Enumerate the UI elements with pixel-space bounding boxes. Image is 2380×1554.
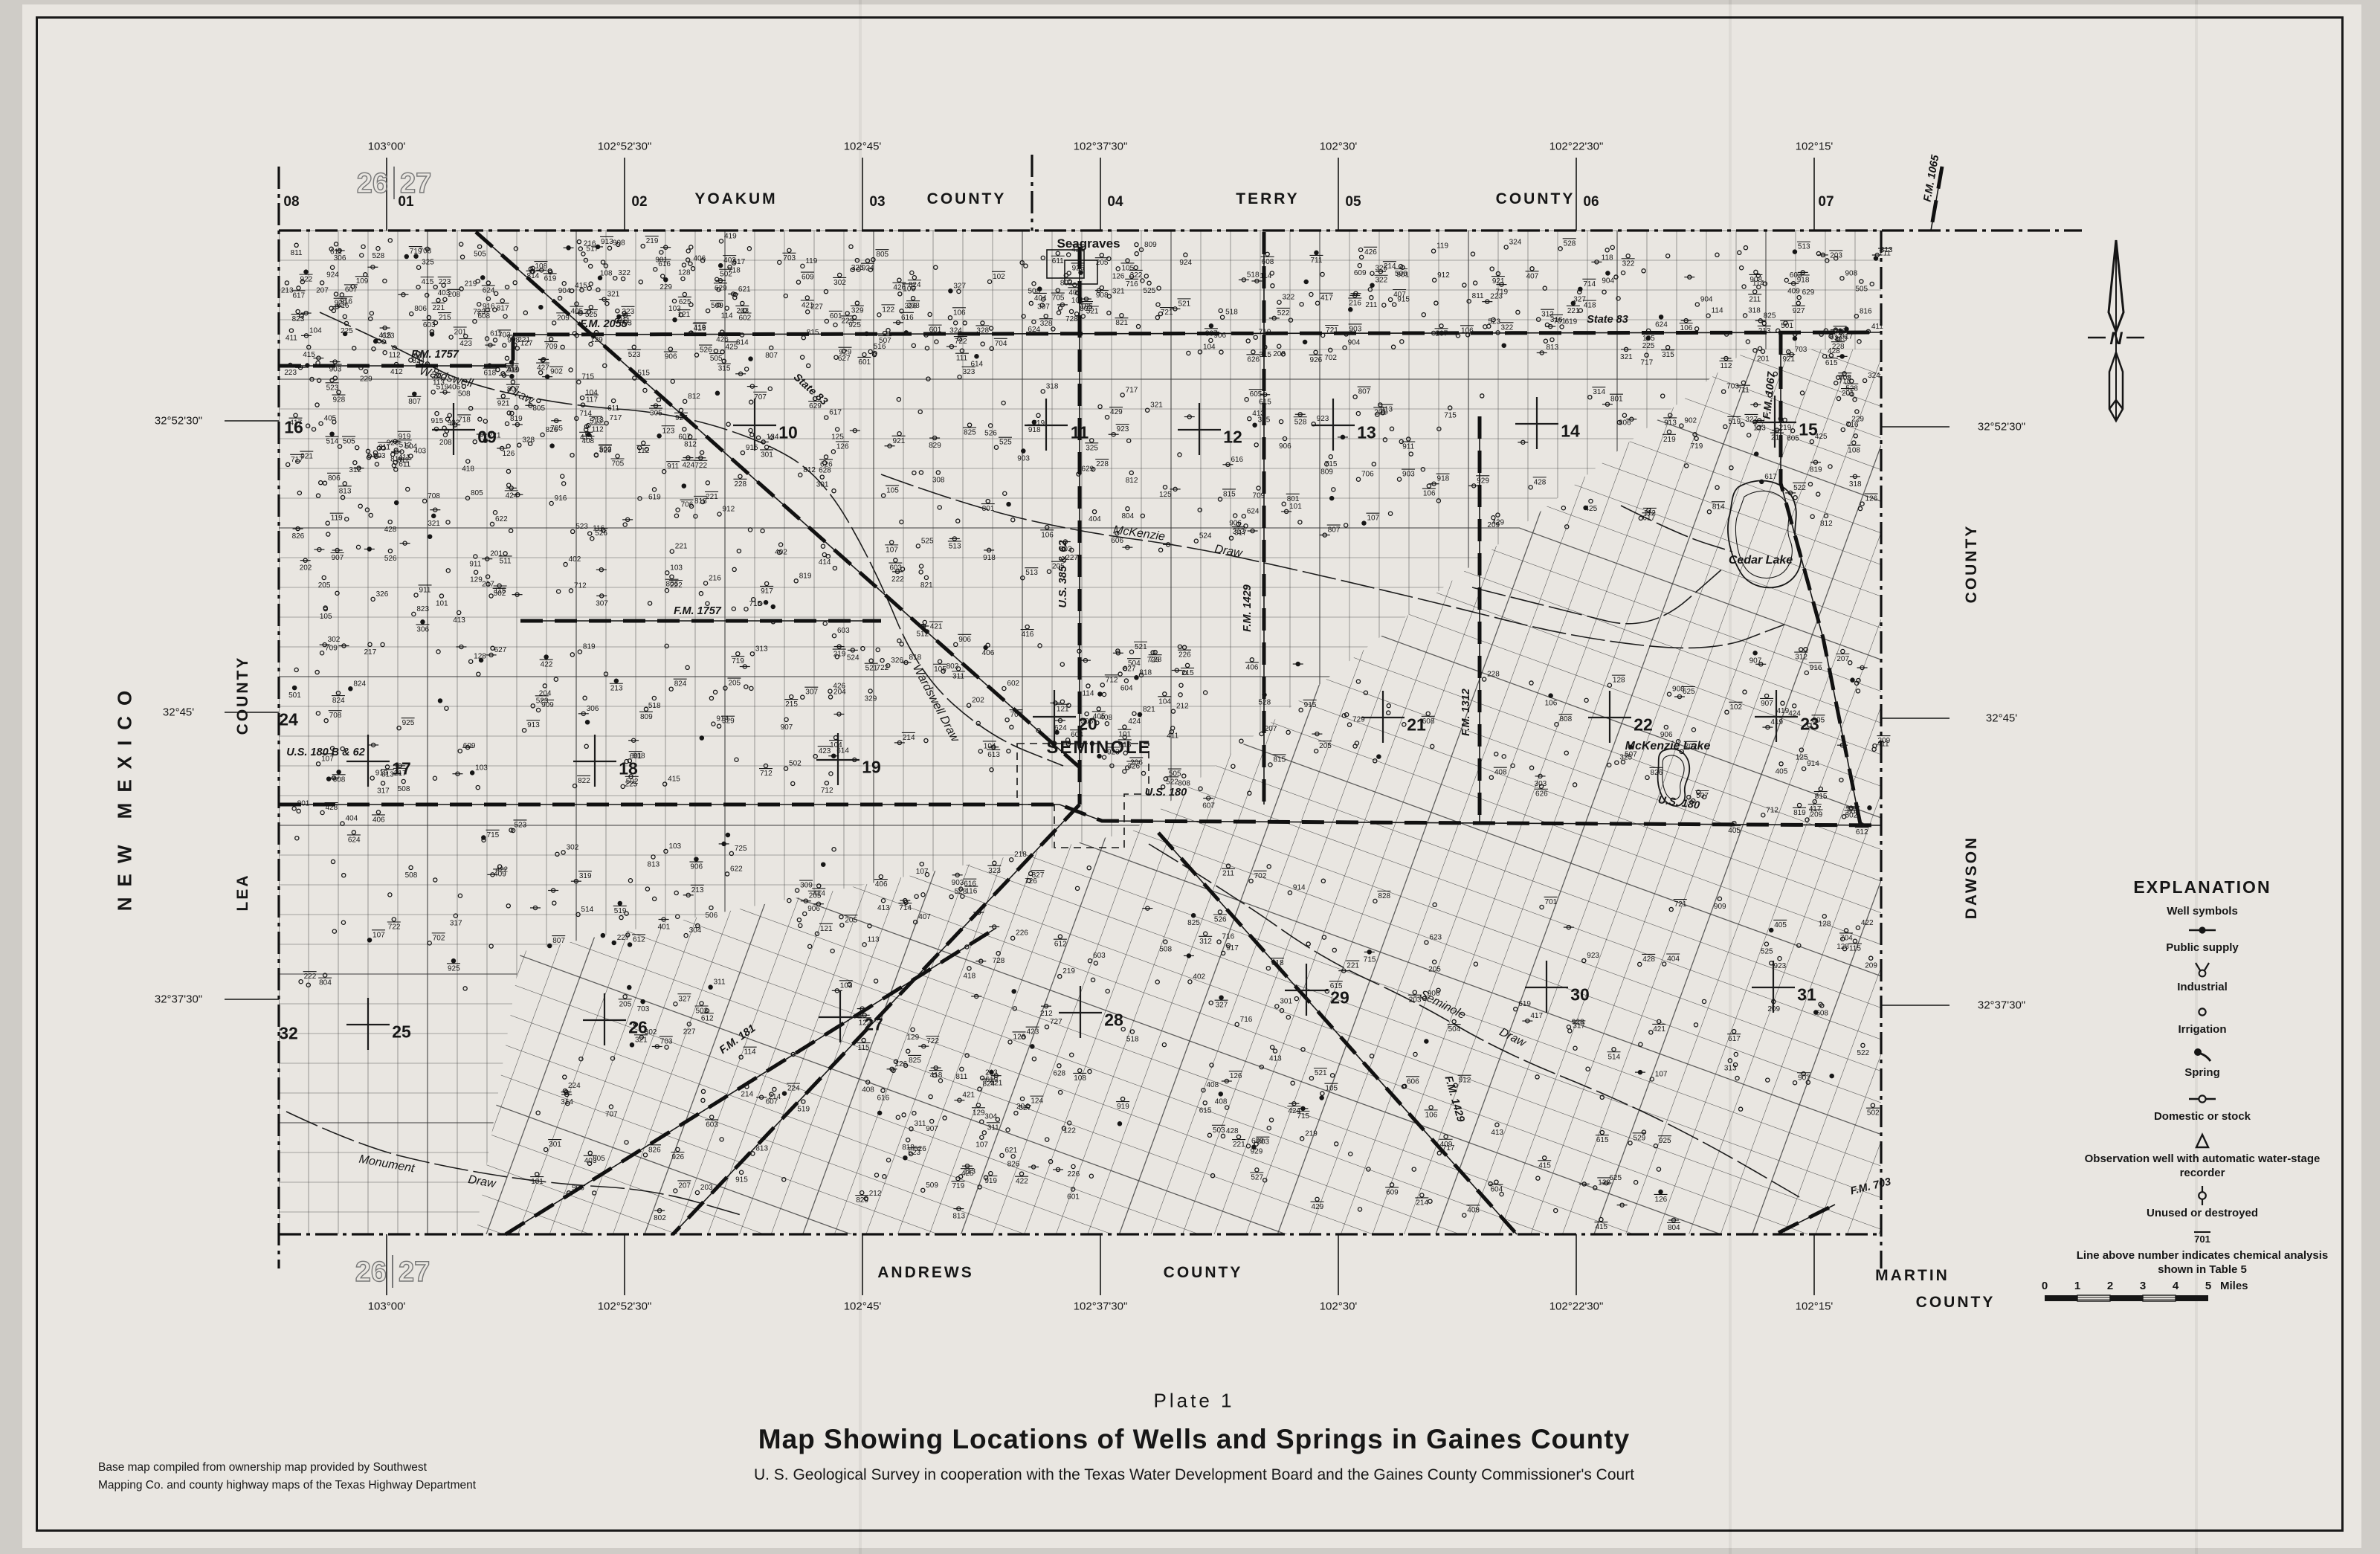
well-number: 106: [903, 285, 915, 293]
well-marker: [536, 708, 540, 712]
well-marker: [701, 1089, 705, 1093]
well-marker: [1315, 301, 1319, 305]
well-number: 314: [1593, 388, 1605, 396]
well-marker: [906, 1138, 910, 1142]
well-marker: [874, 1173, 878, 1177]
well-marker: [1094, 961, 1097, 965]
well-marker: [1130, 1030, 1134, 1034]
well-marker: [771, 604, 775, 608]
well-number: 301: [1280, 998, 1292, 1006]
well-marker: [1057, 1064, 1061, 1068]
well-number: 304: [689, 926, 702, 935]
well-number: 815: [807, 329, 819, 337]
well-marker: [652, 488, 656, 491]
well-marker: [1412, 1167, 1416, 1171]
well-number: 225: [625, 780, 638, 788]
well-marker: [458, 894, 462, 897]
scale-tick: 3: [2140, 1280, 2146, 1292]
well-number: 104: [585, 389, 598, 397]
well-number: 408: [1100, 714, 1112, 722]
well-number: 223: [439, 278, 451, 286]
well-marker: [1429, 1106, 1433, 1109]
well-marker: [1253, 423, 1257, 427]
well-marker: [510, 375, 514, 378]
legend-item-industrial: Industrial: [2076, 958, 2329, 995]
well-marker: [1242, 515, 1245, 518]
well-number: 408: [1494, 769, 1507, 777]
well-marker: [320, 810, 324, 814]
well-marker: [501, 394, 505, 398]
well-marker: [890, 541, 894, 544]
well-marker: [1178, 693, 1182, 697]
well-marker: [1856, 926, 1860, 929]
well-marker: [897, 432, 901, 436]
well-marker: [625, 1141, 628, 1144]
well-marker: [1480, 394, 1484, 398]
well-marker: [1368, 288, 1372, 291]
well-marker: [1824, 514, 1828, 518]
well-marker: [1863, 378, 1867, 382]
well-marker: [457, 610, 461, 614]
well-number: 715: [487, 831, 500, 839]
well-number: 927: [1793, 307, 1805, 315]
well-marker: [717, 724, 720, 728]
well-marker: [1020, 1097, 1024, 1100]
well-marker: [1694, 436, 1698, 440]
well-marker: [1007, 749, 1010, 753]
well-marker: [1692, 799, 1695, 802]
well-marker: [923, 620, 926, 624]
well-marker: [956, 519, 960, 523]
well-marker: [978, 749, 982, 753]
legend-item-label: Domestic or stock: [2076, 1110, 2329, 1124]
well-number: 722: [877, 664, 889, 672]
well-marker: [570, 653, 574, 657]
well-marker: [609, 1105, 613, 1109]
well-marker: [897, 278, 901, 282]
well-marker: [1322, 935, 1326, 939]
well-number: 106: [1545, 700, 1558, 708]
well-marker: [700, 736, 703, 740]
well-marker: [1645, 353, 1648, 357]
county-boundary-layer: [279, 155, 2082, 1268]
well-marker: [319, 422, 323, 425]
well-number: 401: [658, 923, 671, 932]
well-number: 718: [728, 267, 741, 275]
well-marker: [506, 469, 510, 473]
well-marker: [706, 481, 709, 485]
well-marker: [1358, 1208, 1361, 1211]
well-marker: [316, 762, 320, 766]
well-number: 906: [1229, 519, 1242, 527]
sheet-reference-numbers: 2627: [357, 167, 432, 199]
well-number: 227: [1065, 554, 1078, 562]
well-marker: [477, 672, 480, 676]
lake-outline: [1728, 481, 1801, 588]
well-marker: [747, 247, 751, 251]
well-number: 608: [333, 776, 346, 784]
well-marker: [1332, 488, 1335, 491]
well-marker: [1490, 267, 1494, 271]
well-marker: [1467, 300, 1471, 303]
well-marker: [445, 706, 448, 710]
well-number: 211: [1222, 870, 1234, 878]
well-marker: [1861, 1043, 1865, 1047]
well-number: 913: [527, 721, 540, 729]
well-number: 821: [1143, 706, 1155, 714]
well-marker: [1741, 422, 1744, 426]
well-marker: [1267, 1126, 1271, 1130]
well-number: 228: [1096, 460, 1109, 468]
well-number: 908: [1672, 686, 1685, 694]
well-number: 422: [1861, 919, 1874, 927]
well-marker: [919, 570, 923, 574]
well-marker: [1589, 499, 1593, 503]
well-marker: [1225, 1106, 1229, 1109]
well-number: 714: [579, 410, 592, 418]
well-marker: [1422, 313, 1425, 317]
well-marker: [1793, 250, 1796, 254]
well-number: 921: [1782, 355, 1795, 364]
well-marker: [921, 893, 925, 897]
map-subtitle: U. S. Geological Survey in cooperation w…: [754, 1466, 1634, 1484]
well-marker: [344, 332, 347, 335]
well-number: 522: [1793, 484, 1806, 492]
well-marker: [1870, 282, 1874, 286]
well-marker: [806, 310, 810, 314]
well-marker: [960, 1067, 964, 1071]
well-marker: [598, 276, 602, 280]
well-number: 126: [1013, 1033, 1026, 1041]
well-number: 205: [728, 680, 741, 688]
well-marker: [1047, 570, 1051, 573]
well-marker: [1858, 506, 1862, 510]
well-number: 902: [550, 368, 563, 376]
well-number: 229: [360, 375, 373, 384]
well-marker: [1537, 317, 1541, 321]
well-marker: [1068, 1121, 1071, 1125]
well-marker: [916, 544, 920, 548]
well-marker: [921, 1188, 925, 1192]
well-marker: [1164, 940, 1167, 944]
well-marker: [578, 247, 582, 251]
well-marker: [623, 995, 627, 999]
well-number: 301: [549, 1141, 561, 1149]
well-number: 819: [583, 643, 596, 651]
well-marker: [1129, 471, 1133, 474]
well-marker: [980, 1135, 984, 1139]
well-marker: [388, 549, 392, 552]
well-marker: [473, 440, 477, 444]
well-number: 521: [1315, 1069, 1327, 1077]
well-number: 521: [1178, 300, 1190, 308]
well-marker: [1147, 281, 1151, 285]
well-marker: [607, 246, 611, 250]
well-number: 925: [848, 321, 861, 329]
well-number: 621: [1004, 1147, 1017, 1155]
well-marker: [1198, 508, 1202, 512]
well-marker: [552, 321, 556, 325]
well-marker: [725, 872, 729, 876]
well-number: 207: [1436, 329, 1448, 338]
well-number: 826: [648, 1146, 661, 1154]
well-number: 904: [1602, 277, 1614, 285]
well-number: 603: [1060, 546, 1072, 554]
well-marker: [1226, 864, 1230, 868]
well-marker: [689, 245, 693, 249]
well-marker: [1229, 536, 1233, 540]
observation-well-icon: [2186, 1132, 2219, 1151]
well-marker: [1057, 311, 1060, 315]
well-marker: [878, 1111, 882, 1115]
well-marker: [331, 860, 335, 863]
well-marker: [1856, 689, 1860, 693]
well-number: 602: [739, 315, 752, 323]
well-marker: [1383, 438, 1387, 442]
well-marker: [1268, 763, 1272, 767]
well-marker: [1031, 1045, 1034, 1048]
well-number: 913: [601, 238, 613, 246]
well-marker: [360, 254, 364, 257]
well-marker: [948, 316, 952, 320]
well-number: 415: [303, 351, 315, 359]
well-marker: [1755, 452, 1758, 456]
well-number: 413: [453, 616, 465, 625]
well-marker: [1607, 763, 1611, 767]
well-number: 613: [987, 751, 1000, 759]
well-marker: [657, 434, 661, 438]
well-number: 717: [1442, 1144, 1455, 1152]
well-marker: [1797, 295, 1801, 299]
well-number: 201: [454, 328, 467, 336]
well-number: 326: [376, 590, 389, 599]
well-marker: [459, 242, 463, 246]
well-marker: [824, 290, 828, 294]
legend-item-public-supply: Public supply: [2076, 919, 2329, 955]
well-marker: [1549, 694, 1552, 697]
well-number: 506: [705, 912, 717, 920]
well-marker: [513, 281, 517, 285]
well-marker: [1793, 704, 1796, 708]
well-number: 611: [1052, 257, 1064, 265]
well-marker: [832, 489, 836, 493]
well-number: 824: [332, 697, 345, 705]
well-number: 906: [958, 636, 971, 644]
well-marker: [1741, 381, 1745, 384]
well-number: 508: [405, 871, 418, 880]
well-marker: [1638, 962, 1642, 966]
well-marker: [1483, 677, 1486, 681]
well-marker: [1657, 1167, 1660, 1171]
well-marker: [1800, 391, 1804, 395]
well-marker: [1087, 866, 1091, 870]
well-number: 415: [575, 282, 587, 290]
well-marker: [1370, 296, 1373, 300]
well-marker: [1309, 292, 1313, 296]
well-number: 926: [1310, 356, 1323, 364]
well-marker: [505, 356, 509, 360]
well-marker: [1471, 252, 1474, 256]
well-number: 419: [507, 367, 520, 375]
well-number: 417: [1320, 294, 1333, 303]
well-marker: [1188, 980, 1192, 984]
well-marker: [561, 474, 564, 478]
well-number: 804: [319, 979, 332, 987]
well-marker: [987, 280, 991, 283]
well-number: 622: [495, 515, 508, 523]
well-number: 617: [1642, 514, 1655, 522]
well-marker: [735, 758, 738, 761]
well-marker: [1095, 721, 1099, 725]
well-marker: [720, 1138, 723, 1141]
well-number: 518: [1225, 309, 1238, 317]
well-marker: [345, 518, 349, 521]
well-number: 204: [833, 688, 846, 696]
well-number: 719: [1259, 329, 1271, 337]
well-marker: [1692, 728, 1695, 732]
well-number: 907: [781, 723, 793, 732]
well-number: 523: [514, 821, 526, 829]
well-marker: [1203, 1101, 1207, 1105]
well-marker: [1235, 1022, 1239, 1026]
well-marker: [782, 1092, 786, 1095]
well-number: 117: [586, 396, 598, 404]
well-marker: [794, 579, 798, 583]
well-number: 108: [1074, 1074, 1086, 1083]
well-marker: [823, 622, 827, 625]
well-marker: [796, 280, 800, 284]
well-marker: [1100, 683, 1104, 687]
well-number: 425: [1584, 505, 1597, 513]
reference-number-right: 27: [399, 1257, 430, 1288]
well-number: 609: [463, 742, 476, 750]
well-number: 723: [473, 308, 486, 316]
well-marker: [1010, 725, 1013, 729]
well-marker: [1194, 539, 1198, 543]
well-marker: [1198, 350, 1202, 354]
well-number: 424: [1071, 246, 1084, 254]
well-marker: [897, 398, 900, 402]
well-marker: [828, 695, 832, 699]
well-marker: [577, 240, 581, 244]
legend-item-label: Unused or destroyed: [2076, 1207, 2329, 1221]
well-marker: [1377, 755, 1381, 758]
well-number: 318: [1849, 480, 1862, 489]
well-marker: [862, 943, 866, 947]
well-marker: [981, 321, 984, 325]
well-number: 406: [1246, 663, 1259, 671]
well-marker: [605, 302, 609, 306]
well-marker: [1321, 333, 1325, 337]
well-number: 708: [428, 492, 440, 500]
well-marker: [1157, 286, 1161, 290]
well-number: 126: [1230, 1072, 1242, 1080]
well-marker: [458, 749, 462, 752]
well-marker: [1085, 712, 1089, 715]
well-number: 507: [879, 337, 891, 345]
scale-tick: 1: [2074, 1280, 2080, 1292]
well-marker: [787, 248, 791, 252]
map-title: Map Showing Locations of Wells and Sprin…: [758, 1424, 1631, 1455]
lake-inner-outline: [1735, 491, 1792, 578]
well-marker: [1433, 278, 1436, 282]
well-marker: [334, 242, 338, 246]
well-number: 701: [1545, 898, 1558, 906]
well-number: 709: [545, 343, 558, 351]
well-marker: [920, 564, 923, 568]
well-number: 629: [1082, 465, 1094, 474]
well-number: 228: [734, 480, 746, 489]
well-marker: [801, 355, 804, 359]
scale-tick: 2: [2107, 1280, 2113, 1292]
well-marker: [1567, 1025, 1570, 1029]
well-number: 812: [1126, 477, 1138, 485]
well-number: 601: [830, 312, 842, 320]
well-marker: [536, 1111, 540, 1115]
well-marker: [660, 251, 663, 254]
well-number: 504: [404, 443, 417, 451]
well-marker: [1144, 274, 1148, 278]
well-number: 129: [973, 1109, 985, 1117]
well-marker: [463, 987, 467, 990]
well-number: 404: [1089, 515, 1101, 523]
well-marker: [432, 514, 436, 518]
well-number: 209: [557, 314, 570, 322]
well-number: 905: [1813, 716, 1825, 724]
well-marker: [330, 265, 334, 269]
well-marker: [1433, 903, 1436, 906]
well-marker: [1529, 486, 1532, 489]
well-number: 428: [1642, 955, 1655, 964]
well-marker: [996, 952, 1000, 955]
well-marker: [886, 329, 890, 332]
well-marker: [691, 267, 694, 271]
well-marker: [770, 346, 773, 349]
well-marker: [1273, 1049, 1277, 1053]
well-number: 124: [767, 433, 779, 441]
well-marker: [1702, 999, 1706, 1003]
well-marker: [1439, 324, 1443, 328]
well-number: 811: [291, 249, 303, 257]
well-marker: [982, 1131, 986, 1135]
well-number: 312: [1199, 938, 1212, 946]
well-marker: [1075, 886, 1079, 890]
well-marker: [1793, 496, 1797, 500]
well-marker: [589, 264, 593, 268]
well-marker: [1766, 1078, 1770, 1082]
well-marker: [1288, 891, 1291, 894]
well-marker: [623, 523, 627, 526]
well-number: 221: [1347, 962, 1359, 970]
well-marker: [669, 687, 673, 691]
well-number: 101: [531, 1178, 544, 1186]
well-number: 713: [591, 416, 604, 425]
well-number: 601: [858, 358, 871, 367]
well-number: 717: [610, 414, 622, 422]
well-marker: [578, 650, 581, 654]
well-marker: [1723, 425, 1727, 428]
well-marker: [370, 776, 374, 780]
well-marker: [868, 349, 872, 353]
well-number: 326: [1127, 762, 1140, 770]
well-marker: [779, 543, 783, 547]
well-number: 416: [1022, 631, 1034, 639]
well-number: 123: [1753, 425, 1766, 433]
well-number: 422: [541, 661, 553, 669]
well-marker: [990, 768, 993, 772]
well-marker: [1744, 246, 1747, 250]
legend-item-unused: Unused or destroyed: [2076, 1184, 2329, 1221]
